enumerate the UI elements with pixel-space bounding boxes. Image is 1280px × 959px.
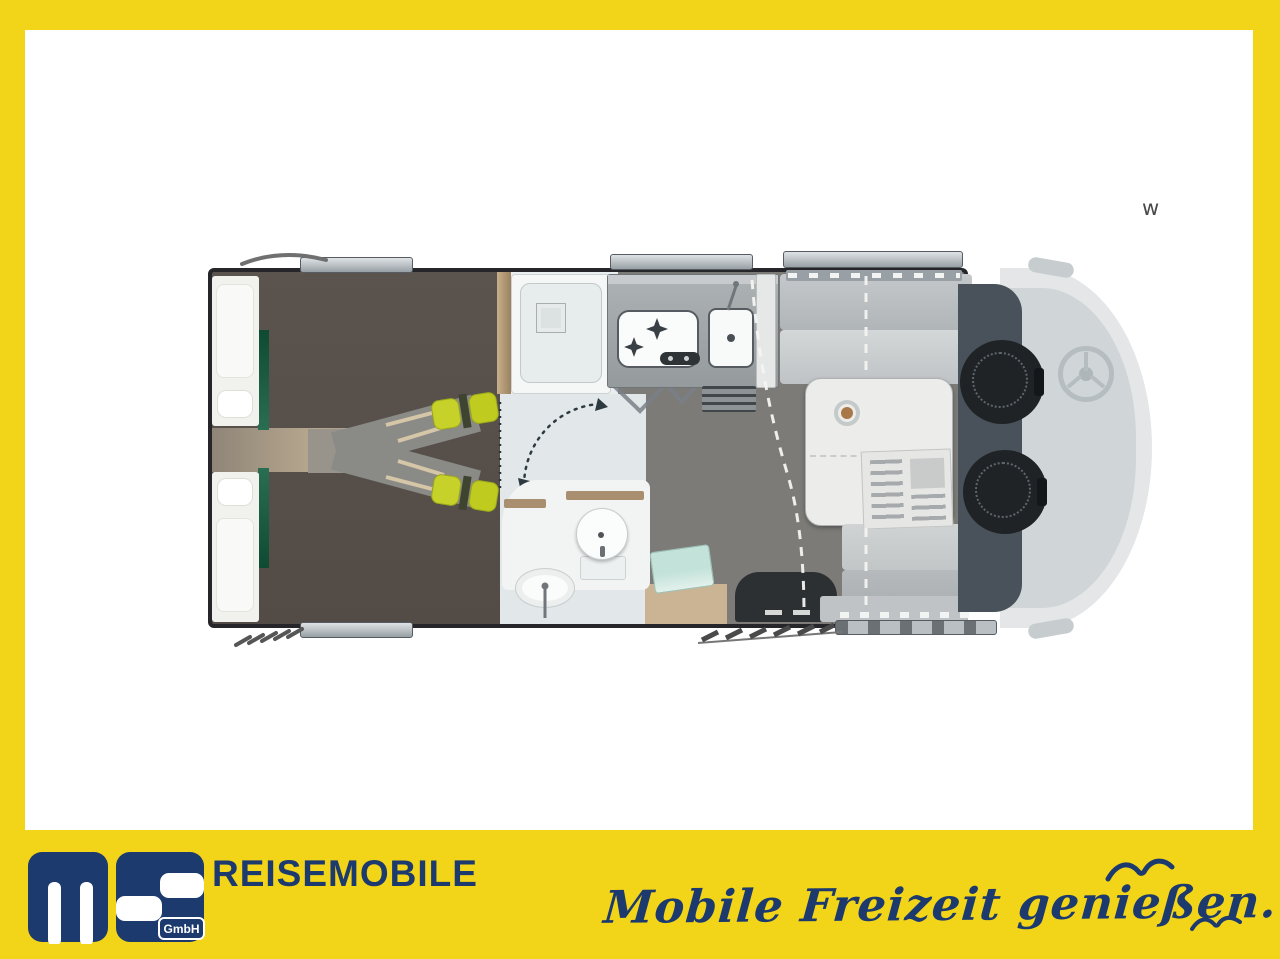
walking-path-dashes	[752, 276, 866, 616]
exterior-ladder-marks	[236, 629, 302, 645]
company-name: REISEMOBILE	[212, 855, 478, 892]
exterior-grab-rail-top	[242, 255, 326, 264]
steering-spokes	[1068, 352, 1104, 387]
floorplan	[208, 266, 1160, 636]
seagull-icon-small	[1190, 913, 1242, 935]
ms-logo: GmbH	[28, 852, 208, 944]
watermark-text: w	[1142, 196, 1159, 220]
photo-canvas: w	[25, 30, 1253, 830]
seagull-icon-large	[1105, 855, 1175, 887]
brand-tagline: Mobile Freizeit genießen.	[602, 875, 1280, 935]
hob-burner-icons	[624, 318, 668, 357]
faucet-icons	[542, 281, 740, 618]
exterior-entry-step-hatch	[698, 625, 842, 643]
floorplan-high-overlay	[208, 246, 1160, 656]
gmbh-label: GmbH	[164, 922, 200, 936]
page-background: { "page": { "frame_color": "#F2D418", "c…	[0, 0, 1280, 959]
